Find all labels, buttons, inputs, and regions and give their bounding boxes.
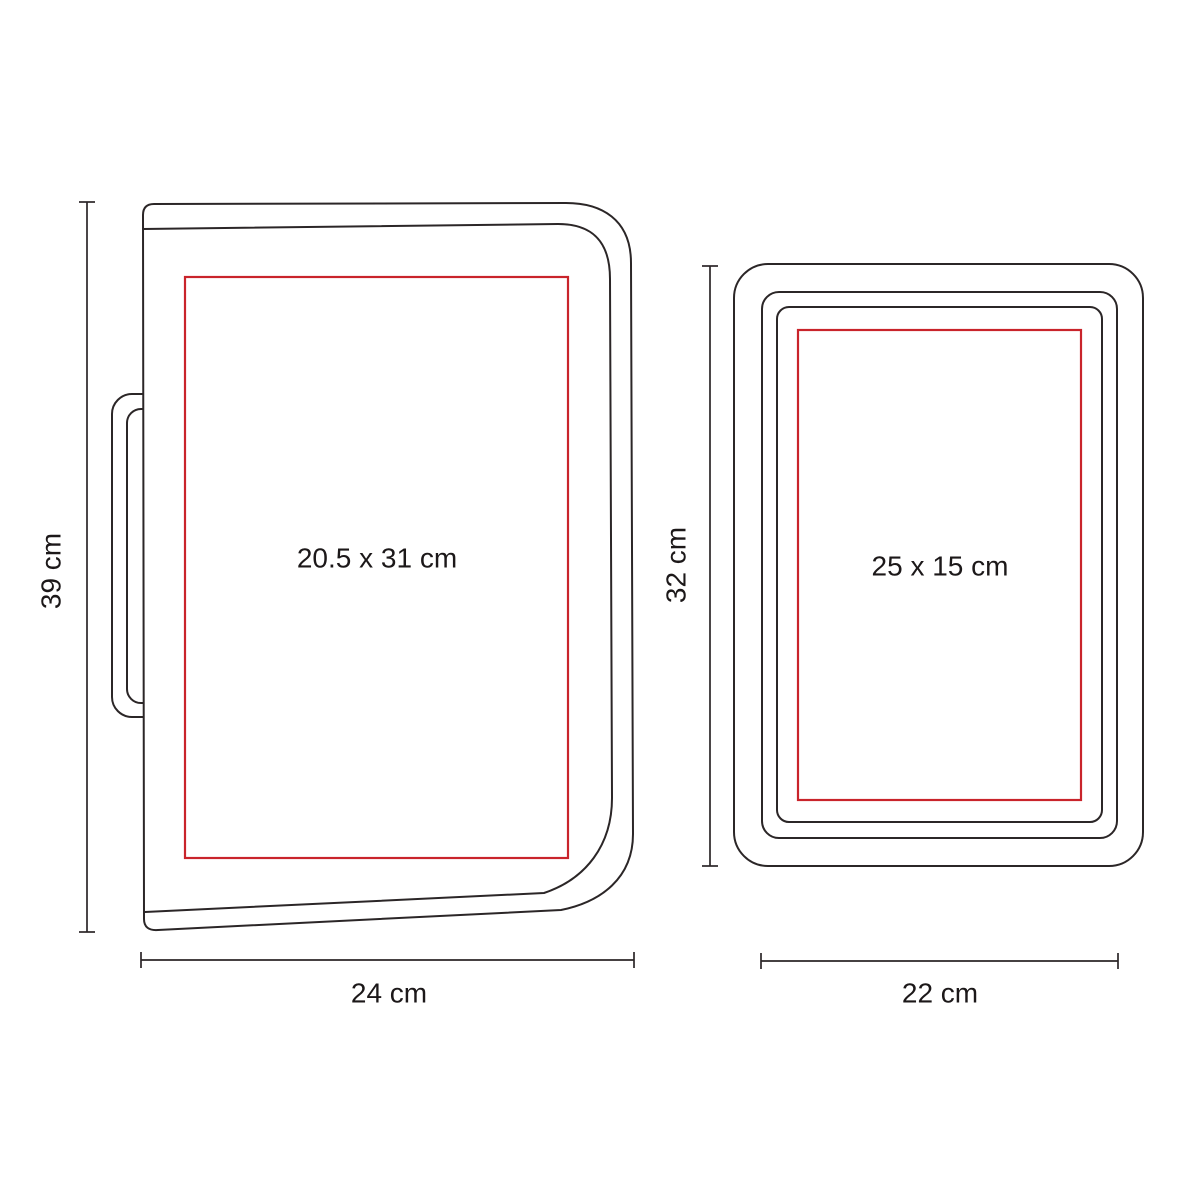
portfolio-width-label: 24 cm <box>351 978 427 1009</box>
portfolio-height-dimension: 39 cm <box>36 202 96 932</box>
sleeve-print-area-label: 25 x 15 cm <box>872 551 1009 582</box>
portfolio-width-dimension: 24 cm <box>141 952 634 1009</box>
sleeve-width-label: 22 cm <box>902 978 978 1009</box>
sleeve-figure: 25 x 15 cm 32 cm 22 cm <box>661 264 1144 1009</box>
sleeve-height-dimension: 32 cm <box>661 266 719 866</box>
portfolio-figure: 20.5 x 31 cm 39 cm 24 cm <box>36 202 635 1009</box>
sleeve-height-label: 32 cm <box>661 527 692 603</box>
dimension-diagram: 20.5 x 31 cm 39 cm 24 cm <box>0 0 1200 1200</box>
portfolio-height-label: 39 cm <box>36 533 67 609</box>
portfolio-print-area-label: 20.5 x 31 cm <box>297 543 457 574</box>
sleeve-width-dimension: 22 cm <box>761 953 1118 1009</box>
dimension-diagram-canvas: 20.5 x 31 cm 39 cm 24 cm <box>0 0 1200 1200</box>
